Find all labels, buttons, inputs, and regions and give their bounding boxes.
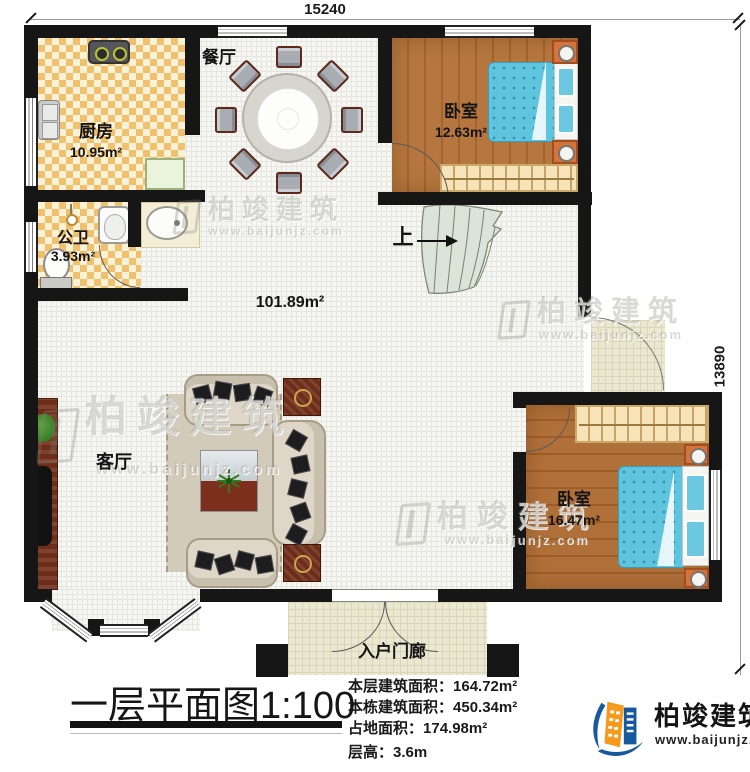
dimension-right-label: 13890 (712, 337, 729, 397)
plant-icon (215, 467, 243, 495)
pendant-ring (66, 214, 78, 226)
side-table (283, 544, 321, 582)
faucet-icon (174, 220, 180, 226)
round-basin-icon (146, 206, 188, 240)
wall-segment (378, 192, 592, 205)
room-label-bedroom2: 卧室 16.47m² (530, 490, 618, 529)
wall-segment (128, 202, 141, 247)
kitchen-sink-icon (38, 100, 60, 140)
dining-table (242, 73, 332, 163)
table-center (277, 108, 299, 130)
coffee-table (200, 450, 258, 512)
dining-chair (276, 46, 302, 68)
bed-mattress (618, 466, 684, 568)
stove-icon (88, 40, 130, 64)
basin-bowl (104, 214, 126, 240)
wall-segment (287, 25, 445, 38)
stairs-arrow-line (417, 240, 447, 242)
room-name: 卧室 (557, 490, 591, 509)
stairs-up-label: 上 (390, 226, 416, 250)
room-area: 10.95m² (70, 144, 122, 160)
stats-block: 本层建筑面积：164.72m² 本栋建筑面积：450.34m² 占地面积：174… (348, 676, 517, 763)
title-underline (70, 721, 342, 728)
lamp-icon (690, 571, 707, 588)
wall-segment (30, 25, 218, 38)
room-label-bathroom: 公卫 3.93m² (40, 230, 106, 267)
dimension-tick (25, 12, 36, 23)
bed-pillow (557, 104, 575, 134)
window (24, 222, 38, 272)
stat-value: 174.98m² (423, 720, 487, 737)
stat-line: 层高：3.6m (348, 742, 517, 763)
entry-door-frame (332, 589, 438, 602)
wall-segment (24, 190, 205, 202)
lamp-icon (558, 145, 575, 162)
window (218, 25, 287, 38)
bed-pillow (685, 474, 706, 512)
sofa-pillow (290, 454, 310, 474)
wardrobe (575, 405, 709, 443)
nightstand (552, 40, 578, 64)
wall-segment (24, 288, 188, 301)
pendant-icon (66, 204, 76, 226)
bed-pillow (685, 520, 706, 558)
sofa-pillow (194, 550, 214, 570)
wardrobe (440, 164, 578, 192)
burner-icon (95, 47, 109, 61)
sofa-pillow (233, 383, 252, 402)
wall-segment (513, 392, 526, 408)
dimension-top-line (30, 19, 740, 20)
dimension-right-line (740, 25, 741, 675)
table-ornament-icon (294, 555, 312, 573)
stairs-arrow-head-icon (446, 235, 458, 247)
brand-url: www.baijunjz.com (655, 732, 750, 747)
room-label-bedroom1: 卧室 12.63m² (415, 102, 507, 141)
room-area: 3.93m² (51, 248, 95, 264)
bed-pillow (557, 67, 575, 97)
dining-chair (276, 172, 302, 194)
brand-logo-icon (588, 690, 650, 760)
burner-icon (113, 47, 127, 61)
porch-pillar (256, 644, 288, 677)
fridge-icon (145, 158, 185, 190)
sink-basin (42, 104, 58, 121)
room-label-dining: 餐厅 (192, 48, 246, 68)
stat-label: 本栋建筑面积： (348, 699, 453, 716)
stat-label: 层高： (348, 744, 393, 761)
room-label-porch: 入户门廊 (332, 642, 452, 662)
nightstand (684, 568, 709, 588)
stat-value: 164.72m² (453, 678, 517, 695)
sofa-pillow (213, 381, 233, 401)
lamp-icon (558, 45, 575, 62)
nightstand (684, 444, 709, 465)
window (24, 98, 38, 186)
hall-area-label: 101.89m² (240, 294, 340, 312)
stat-label: 本层建筑面积： (348, 678, 453, 695)
porch-pillar (487, 644, 519, 677)
room-area: 16.47m² (548, 512, 600, 528)
bed-sheet-fold (654, 466, 674, 566)
bay-window-center (100, 624, 148, 637)
room-area: 12.63m² (435, 124, 487, 140)
sink-basin (42, 122, 58, 139)
room-label-living: 客厅 (88, 452, 140, 473)
stat-line: 占地面积：174.98m² (348, 718, 517, 739)
bed-sheet-fold (528, 62, 546, 140)
side-table (283, 378, 321, 416)
dining-chair (341, 107, 363, 133)
pendant-cord (70, 204, 72, 214)
title-underline-thin (70, 733, 342, 734)
wall-segment (200, 589, 332, 602)
wall-segment (513, 392, 722, 405)
table-ornament-icon (294, 389, 312, 407)
room-name: 卧室 (444, 102, 478, 121)
wall-segment (378, 38, 392, 143)
dimension-top-label: 15240 (280, 1, 370, 18)
brand-logo: 柏竣建筑 www.baijunjz.com (588, 688, 748, 764)
window (445, 25, 534, 38)
dining-chair (215, 107, 237, 133)
lamp-icon (690, 448, 707, 465)
wall-segment (578, 25, 591, 317)
room-name: 公卫 (57, 230, 89, 247)
stat-line: 本栋建筑面积：450.34m² (348, 697, 517, 718)
stat-value: 3.6m (393, 744, 427, 761)
wall-segment (513, 589, 722, 602)
nightstand (552, 140, 578, 164)
stat-label: 占地面积： (348, 720, 423, 737)
brand-name: 柏竣建筑 (654, 696, 750, 733)
sofa-pillow (255, 555, 275, 575)
bed (618, 466, 709, 566)
stat-line: 本层建筑面积：164.72m² (348, 676, 517, 697)
room-label-kitchen: 厨房 10.95m² (58, 122, 134, 161)
stairs (416, 202, 516, 296)
window (709, 470, 722, 560)
stat-value: 450.34m² (453, 699, 517, 716)
wall-segment (513, 452, 526, 602)
floor-plan: 15240 13890 (0, 0, 750, 772)
room-name: 厨房 (79, 122, 113, 141)
